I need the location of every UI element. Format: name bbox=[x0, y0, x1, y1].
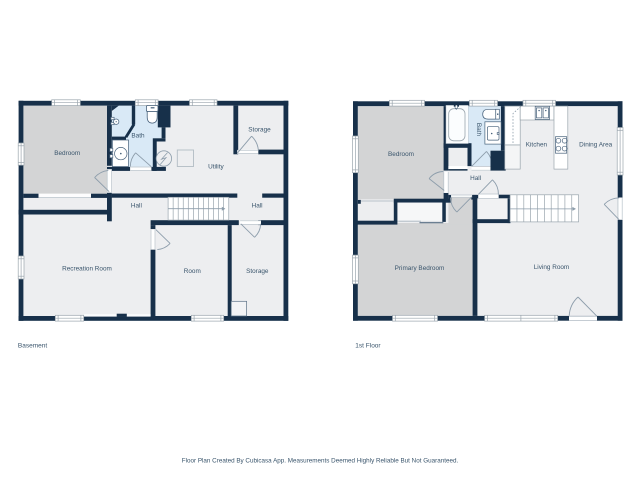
svg-text:Recreation Room: Recreation Room bbox=[62, 265, 112, 272]
svg-text:Hall: Hall bbox=[470, 175, 481, 182]
svg-text:Bath: Bath bbox=[475, 123, 482, 137]
svg-text:Living Room: Living Room bbox=[534, 264, 570, 271]
svg-text:Basement: Basement bbox=[18, 342, 47, 349]
svg-text:1st Floor: 1st Floor bbox=[355, 342, 381, 349]
svg-text:Hall: Hall bbox=[252, 202, 263, 209]
svg-text:Floor Plan Created By Cubicasa: Floor Plan Created By Cubicasa App. Meas… bbox=[182, 458, 459, 465]
svg-text:Room: Room bbox=[184, 268, 201, 275]
svg-text:Storage: Storage bbox=[246, 268, 269, 275]
svg-text:Utility: Utility bbox=[208, 164, 224, 171]
svg-text:Kitchen: Kitchen bbox=[526, 141, 548, 148]
svg-text:Primary Bedroom: Primary Bedroom bbox=[395, 265, 445, 272]
svg-text:Bath: Bath bbox=[131, 133, 145, 140]
svg-text:Bedroom: Bedroom bbox=[54, 150, 80, 157]
svg-text:Bedroom: Bedroom bbox=[388, 151, 414, 158]
svg-text:Hall: Hall bbox=[131, 202, 142, 209]
svg-text:Dining Area: Dining Area bbox=[579, 141, 612, 148]
svg-text:Storage: Storage bbox=[248, 127, 271, 134]
